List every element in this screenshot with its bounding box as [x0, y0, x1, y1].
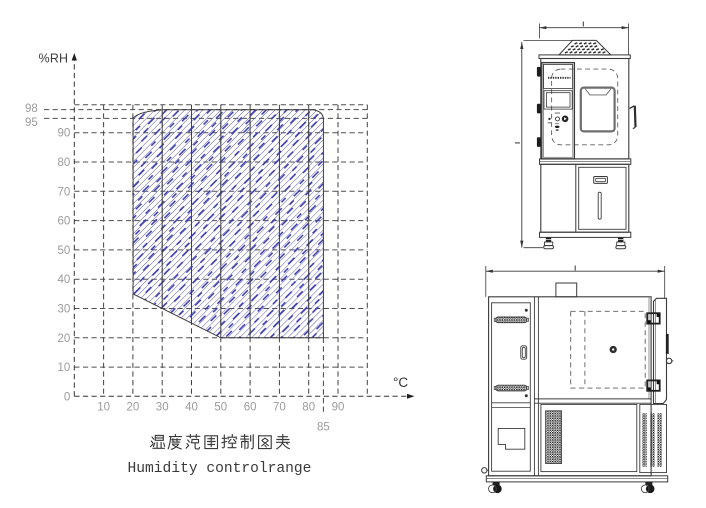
svg-text:85: 85	[317, 422, 330, 434]
svg-text:90: 90	[332, 402, 345, 414]
svg-text:30: 30	[58, 304, 71, 316]
svg-text:98: 98	[25, 103, 38, 115]
svg-text:95: 95	[25, 117, 38, 129]
svg-text:50: 50	[214, 402, 227, 414]
svg-text:°C: °C	[393, 375, 408, 390]
svg-text:60: 60	[244, 402, 257, 414]
svg-text:80: 80	[58, 157, 71, 169]
svg-text:%RH: %RH	[39, 52, 69, 66]
svg-text:20: 20	[127, 402, 140, 414]
svg-text:20: 20	[58, 333, 71, 345]
svg-text:80: 80	[302, 402, 315, 414]
svg-text:40: 40	[58, 274, 71, 286]
svg-text:70: 70	[58, 186, 71, 198]
svg-text:60: 60	[58, 216, 71, 228]
svg-text:70: 70	[273, 402, 286, 414]
svg-text:0: 0	[64, 391, 70, 403]
svg-text:50: 50	[58, 245, 71, 257]
svg-text:10: 10	[58, 362, 71, 374]
svg-text:Humidity controlrange: Humidity controlrange	[128, 461, 312, 477]
svg-text:10: 10	[97, 402, 110, 414]
svg-text:90: 90	[58, 128, 71, 140]
svg-text:40: 40	[185, 402, 198, 414]
svg-text:30: 30	[156, 402, 169, 414]
